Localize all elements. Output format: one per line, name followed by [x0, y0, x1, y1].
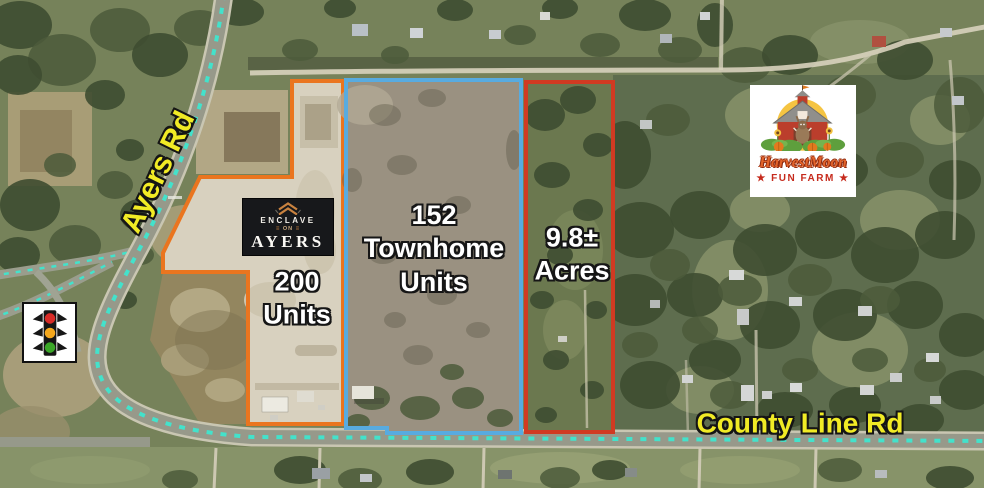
aerial-site-map: Ayers Rd County Line Rd 200 Units 152 To…: [0, 0, 984, 488]
enclave-on-ayers-logo: ENCLAVE ≡ ON ≡ AYERS: [242, 198, 334, 256]
harvest-moon-title: HarvestMoon: [750, 154, 856, 172]
ayers-wordmark: AYERS: [243, 232, 333, 252]
red-parcel-label: 9.8± Acres: [534, 222, 609, 289]
orange-parcel-label: 200 Units: [263, 266, 331, 333]
county-line-rd-label: County Line Rd: [697, 407, 904, 442]
red-parcel-label-line: Acres: [534, 255, 609, 288]
harvest-moon-fun-farm-logo: HarvestMoon ★ FUN FARM ★: [750, 85, 856, 197]
red-parcel-label-line: 9.8±: [534, 222, 609, 255]
harvest-moon-subtitle: ★ FUN FARM ★: [750, 173, 856, 184]
harvest-moon-art: [750, 85, 856, 151]
green-light: [44, 342, 55, 353]
blue-parcel-label-line: Units: [364, 266, 504, 299]
orange-parcel-label-line: 200: [263, 266, 331, 299]
orange-parcel-label-line: Units: [263, 299, 331, 332]
enclave-wordmark: ENCLAVE: [243, 216, 333, 225]
amber-light: [44, 327, 55, 338]
traffic-signal-icon: [22, 302, 77, 363]
blue-parcel-label-line: Townhome: [364, 232, 504, 265]
blue-parcel-label-line: 152: [364, 199, 504, 232]
chevron-icon: [275, 202, 301, 215]
red-light: [44, 313, 55, 324]
traffic-signal-glyph: [30, 308, 70, 358]
blue-parcel-label: 152 Townhome Units: [364, 199, 504, 299]
